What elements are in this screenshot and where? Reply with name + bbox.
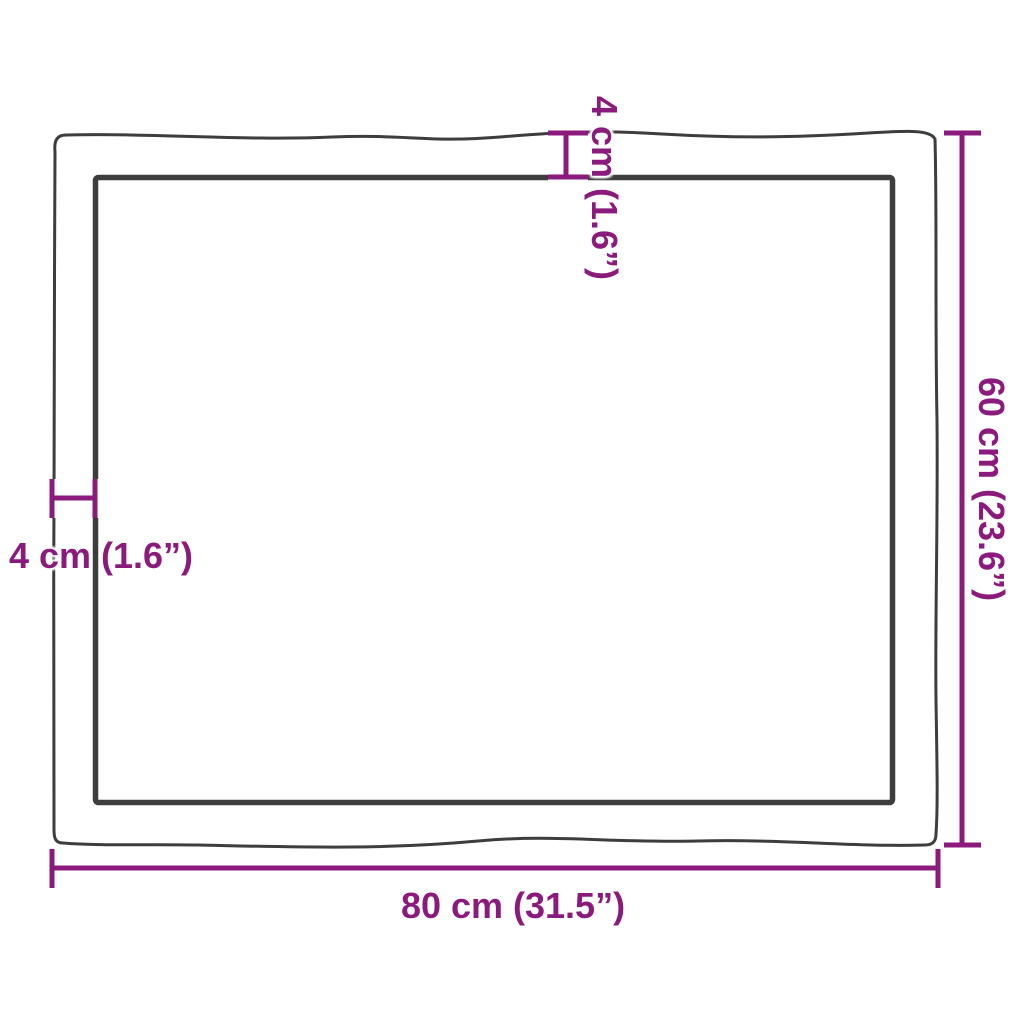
width-label: 80 cm (31.5”) [401, 885, 625, 927]
dimension-diagram: 4 cm (1.6”) 4 cm (1.6”) 60 cm (23.6”) 80… [0, 0, 1024, 1024]
height-label: 60 cm (23.6”) [970, 377, 1012, 601]
thickness-top-label: 4 cm (1.6”) [583, 96, 625, 280]
diagram-drawing [0, 0, 1024, 1024]
tabletop-inner-edge [96, 178, 893, 803]
width-dimension-marker [52, 849, 938, 888]
width-dimension-line [52, 849, 938, 888]
thickness-left-label: 4 cm (1.6”) [9, 535, 193, 577]
